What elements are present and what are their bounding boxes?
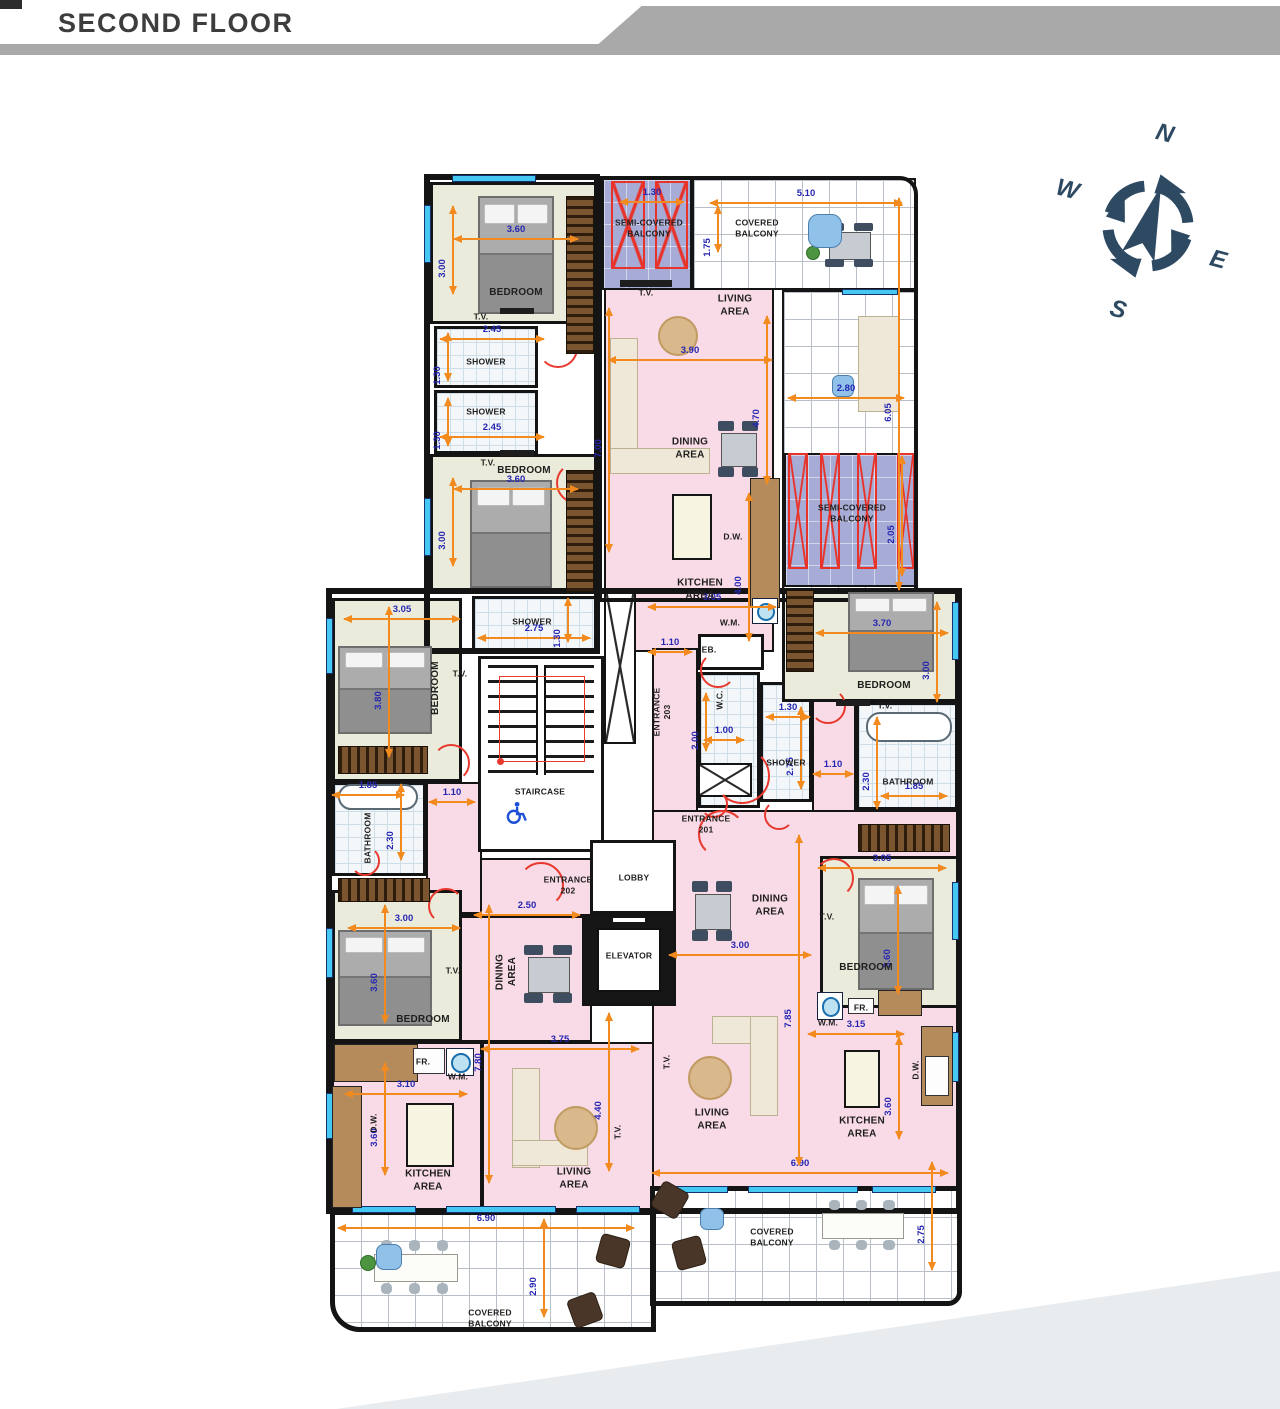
label-t-v: T.V. [639, 288, 654, 299]
outdoor-table [818, 1200, 906, 1250]
chair [718, 467, 734, 477]
pillow [892, 598, 927, 612]
chair [829, 1200, 840, 1210]
label-living-area: LIVING AREA [718, 294, 753, 319]
chair [437, 1283, 449, 1294]
label-shower: SHOWER [766, 758, 805, 769]
label-covered-balcony: COVERED BALCONY [750, 1226, 793, 1247]
covered-balcony-top [692, 178, 916, 290]
bed [848, 592, 934, 672]
window [842, 289, 898, 295]
label-kitchen-area: KITCHEN AREA [405, 1169, 451, 1194]
sofa [610, 338, 638, 458]
label-t-v: T.V. [446, 966, 461, 977]
label-bedroom: BEDROOM [839, 962, 893, 975]
chair [716, 930, 732, 941]
table-top [695, 894, 730, 931]
elevator-door-line [613, 918, 645, 922]
label-entrance-203: ENTRANCE 203 [651, 688, 672, 737]
pillow [512, 487, 545, 506]
wardrobe-icon [338, 746, 428, 774]
label-t-v: T.V. [820, 912, 835, 923]
kitchen-counter [332, 1086, 362, 1208]
shower-2 [434, 390, 538, 454]
rug-icon [554, 1106, 598, 1150]
chair [524, 945, 543, 955]
drum [757, 603, 776, 622]
label-t-v: T.V. [474, 312, 489, 323]
wardrobe-icon [858, 824, 950, 852]
bed [470, 480, 552, 588]
label-d-w: D.W. [911, 1060, 922, 1079]
label-shower: SHOWER [512, 617, 551, 628]
kitchen-counter [878, 990, 922, 1016]
kitchen-island [844, 1050, 880, 1108]
chair [856, 1200, 867, 1210]
chair [718, 421, 734, 431]
label-d-w: D.W. [369, 1113, 380, 1132]
label-staircase: STAIRCASE [515, 787, 565, 798]
floor-plan: 3.601.305.102.452.453.903.602.803.051.10… [0, 0, 1280, 1409]
label-w-c: W.C. [715, 690, 726, 709]
chair [437, 1240, 449, 1251]
label-kitchen-area: KITCHEN AREA [839, 1116, 885, 1141]
label-entrance-202: ENTRANCE 202 [544, 874, 593, 895]
rug-icon [658, 316, 698, 356]
pillow [387, 652, 425, 667]
chair [829, 1240, 840, 1250]
window [576, 1206, 640, 1213]
blanket [472, 532, 550, 586]
plant-icon [806, 246, 820, 260]
label-t-v: T.V. [613, 1125, 624, 1140]
window [952, 602, 959, 660]
window [952, 882, 959, 940]
pillow [484, 204, 515, 224]
decor-icon [700, 1208, 724, 1230]
tv-unit-icon [500, 308, 534, 314]
chair [409, 1240, 421, 1251]
window [952, 1032, 959, 1082]
chair [553, 993, 572, 1003]
table-top [721, 433, 756, 467]
washing-machine-icon [817, 992, 843, 1020]
label-dining-area: DINING AREA [752, 894, 788, 919]
label-eb: EB. [702, 645, 717, 656]
dining-table [686, 880, 738, 942]
wardrobe-icon [338, 878, 430, 902]
dining-table [712, 420, 764, 478]
label-bedroom: BEDROOM [396, 1014, 450, 1027]
bathtub-icon [338, 784, 418, 810]
label-t-v: T.V. [878, 701, 893, 712]
window [326, 928, 333, 978]
label-dining-area: DINING AREA [495, 954, 520, 990]
pillow [864, 885, 895, 904]
wardrobe-icon [566, 470, 594, 592]
chair [742, 421, 758, 431]
label-bedroom: BEDROOM [497, 465, 551, 478]
label-d-w: D.W. [723, 532, 742, 543]
wardrobe-icon [566, 196, 594, 354]
washing-machine-icon [752, 598, 778, 624]
label-lobby: LOBBY [619, 873, 650, 884]
bed [338, 930, 432, 1026]
label-t-v: T.V. [481, 458, 496, 469]
sofa [858, 316, 900, 412]
pillow [477, 487, 510, 506]
label-semi-covered-balcony: SEMI-COVERED BALCONY [818, 502, 886, 523]
chair [553, 945, 572, 955]
label-bathroom: BATHROOM [882, 777, 933, 788]
tv-unit-icon [620, 280, 672, 287]
chair [716, 881, 732, 892]
table-top [528, 957, 570, 993]
bed [338, 646, 432, 734]
window [872, 1186, 936, 1193]
label-living-area: LIVING AREA [557, 1167, 592, 1192]
label-fr: FR. [854, 1003, 868, 1014]
shutter-panel [897, 453, 915, 569]
pillow [855, 598, 890, 612]
floor-plan-page: { "header": { "title": "SECOND FLOOR" },… [0, 0, 1280, 1409]
sofa [750, 1016, 778, 1116]
chair [825, 259, 844, 267]
wardrobe-icon [786, 590, 814, 672]
window [424, 498, 431, 556]
plant-icon [360, 1255, 376, 1271]
wheelchair-icon [503, 800, 529, 826]
label-bedroom: BEDROOM [857, 680, 911, 693]
blanket [850, 630, 932, 670]
bathtub-icon [866, 712, 952, 742]
label-shower: SHOWER [466, 357, 505, 368]
window [748, 1186, 858, 1193]
label-elevator: ELEVATOR [606, 951, 652, 962]
duct-shaft [604, 588, 636, 744]
drum [822, 997, 841, 1017]
label-bathroom: BATHROOM [363, 812, 374, 863]
chair [854, 259, 873, 267]
label-living-area: LIVING AREA [695, 1108, 730, 1133]
label-shower: SHOWER [466, 407, 505, 418]
staircase [478, 656, 604, 852]
chair [381, 1283, 393, 1294]
blanket [340, 688, 430, 732]
chair [883, 1240, 894, 1250]
pillow [517, 204, 548, 224]
blanket [860, 932, 932, 988]
decor-icon [376, 1244, 402, 1270]
fridge-icon [925, 1056, 949, 1096]
window [424, 205, 431, 263]
label-bedroom: BEDROOM [430, 661, 443, 715]
chair [524, 993, 543, 1003]
kitchen-counter [334, 1044, 418, 1082]
kitchen-island [406, 1103, 454, 1167]
window [326, 618, 333, 674]
pillow [897, 885, 928, 904]
table-top [822, 1213, 905, 1239]
label-t-v: T.V. [453, 669, 468, 680]
kitchen-island [672, 494, 712, 560]
drum [451, 1053, 471, 1073]
chair [409, 1283, 421, 1294]
window [452, 175, 536, 182]
label-entrance-201: ENTRANCE 201 [682, 813, 731, 834]
shutter-panel [788, 453, 808, 569]
label-t-v: T.V. [662, 1055, 673, 1070]
window [446, 1206, 556, 1213]
label-semi-covered-balcony: SEMI-COVERED BALCONY [615, 217, 683, 238]
label-kitchen-area: KITCHEN AREA [677, 578, 723, 603]
label-dining-area: DINING AREA [672, 437, 708, 462]
chair [883, 1200, 894, 1210]
stair-path-dot [497, 758, 504, 765]
decor-icon [808, 214, 842, 248]
pillow [345, 652, 383, 667]
label-fr: FR. [416, 1057, 430, 1068]
label-covered-balcony: COVERED BALCONY [468, 1307, 511, 1328]
label-bedroom: BEDROOM [489, 287, 543, 300]
pillow [387, 937, 425, 954]
label-covered-balcony: COVERED BALCONY [735, 217, 778, 238]
tv-unit-icon [500, 450, 534, 456]
rug-icon [688, 1056, 732, 1100]
chair [856, 1240, 867, 1250]
chair [692, 881, 708, 892]
pillow [345, 937, 383, 954]
chair [742, 467, 758, 477]
decor-icon [832, 375, 854, 397]
chair [692, 930, 708, 941]
stair-path-line [499, 676, 585, 762]
label-w-m: W.M. [720, 618, 740, 629]
blanket [480, 253, 552, 312]
chair [854, 223, 873, 231]
dining-table [517, 944, 579, 1004]
tv-unit-icon [836, 700, 870, 706]
label-w-m: W.M. [818, 1018, 838, 1029]
label-w-m: W.M. [448, 1072, 468, 1083]
kitchen-counter [750, 478, 780, 608]
